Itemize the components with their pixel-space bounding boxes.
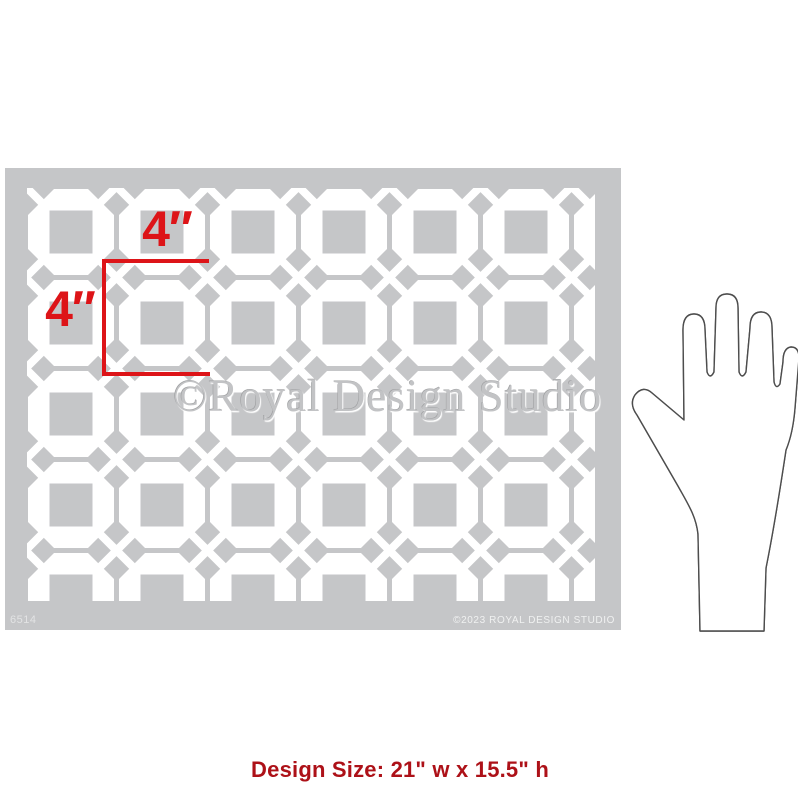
design-size-caption: Design Size: 21" w x 15.5" h	[0, 757, 800, 783]
copyright-notice: ©2023 ROYAL DESIGN STUDIO	[453, 615, 615, 626]
size-label-vertical: 4″	[38, 284, 102, 334]
size-label-horizontal: 4″	[135, 204, 199, 254]
product-image: ©Royal Design Studio 6514 ©2023 ROYAL DE…	[0, 0, 800, 800]
watermark: ©Royal Design Studio	[173, 374, 613, 419]
dimension-marker-bottom-bar	[102, 372, 210, 376]
product-code: 6514	[10, 614, 36, 626]
hand-scale-illustration	[628, 288, 798, 633]
dimension-marker-top-bar	[102, 259, 209, 263]
dimension-marker-left-bar	[102, 259, 106, 376]
stencil-sheet: ©Royal Design Studio 6514 ©2023 ROYAL DE…	[5, 168, 621, 630]
